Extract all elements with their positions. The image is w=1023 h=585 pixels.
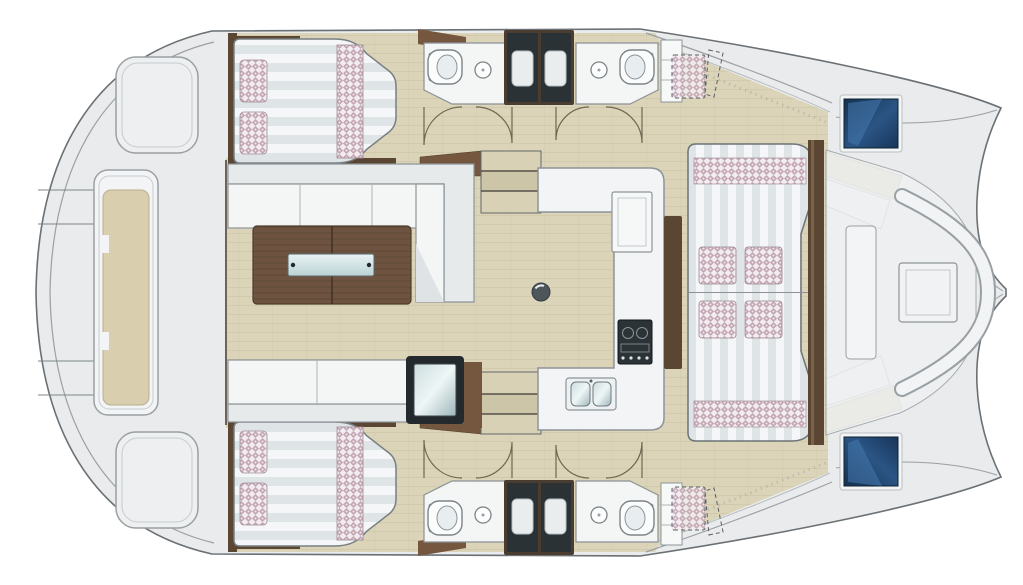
daybed-cushion — [699, 247, 736, 284]
saloon-sofa-starboard — [228, 360, 408, 422]
galley-stove — [618, 320, 652, 364]
daybed-cushion — [745, 247, 782, 284]
catamaran-floor-plan — [0, 0, 1023, 585]
daybed-runner — [694, 158, 806, 184]
floor-hatch — [532, 283, 550, 301]
daybed-cushion — [745, 301, 782, 338]
daybed-cushion — [699, 301, 736, 338]
aft-platform-bench — [94, 170, 158, 415]
saloon-table — [253, 226, 411, 304]
galley-sink — [566, 378, 616, 410]
floor-plan-canvas — [0, 0, 1023, 585]
daybed-runner — [694, 401, 806, 427]
cockpit-console — [846, 226, 876, 359]
daybed-side-wall — [664, 216, 682, 369]
saloon-cabinet — [406, 356, 482, 428]
forward-bulkhead-trim — [811, 140, 814, 445]
forward-bulkhead — [808, 140, 824, 445]
cockpit-table — [899, 263, 957, 322]
